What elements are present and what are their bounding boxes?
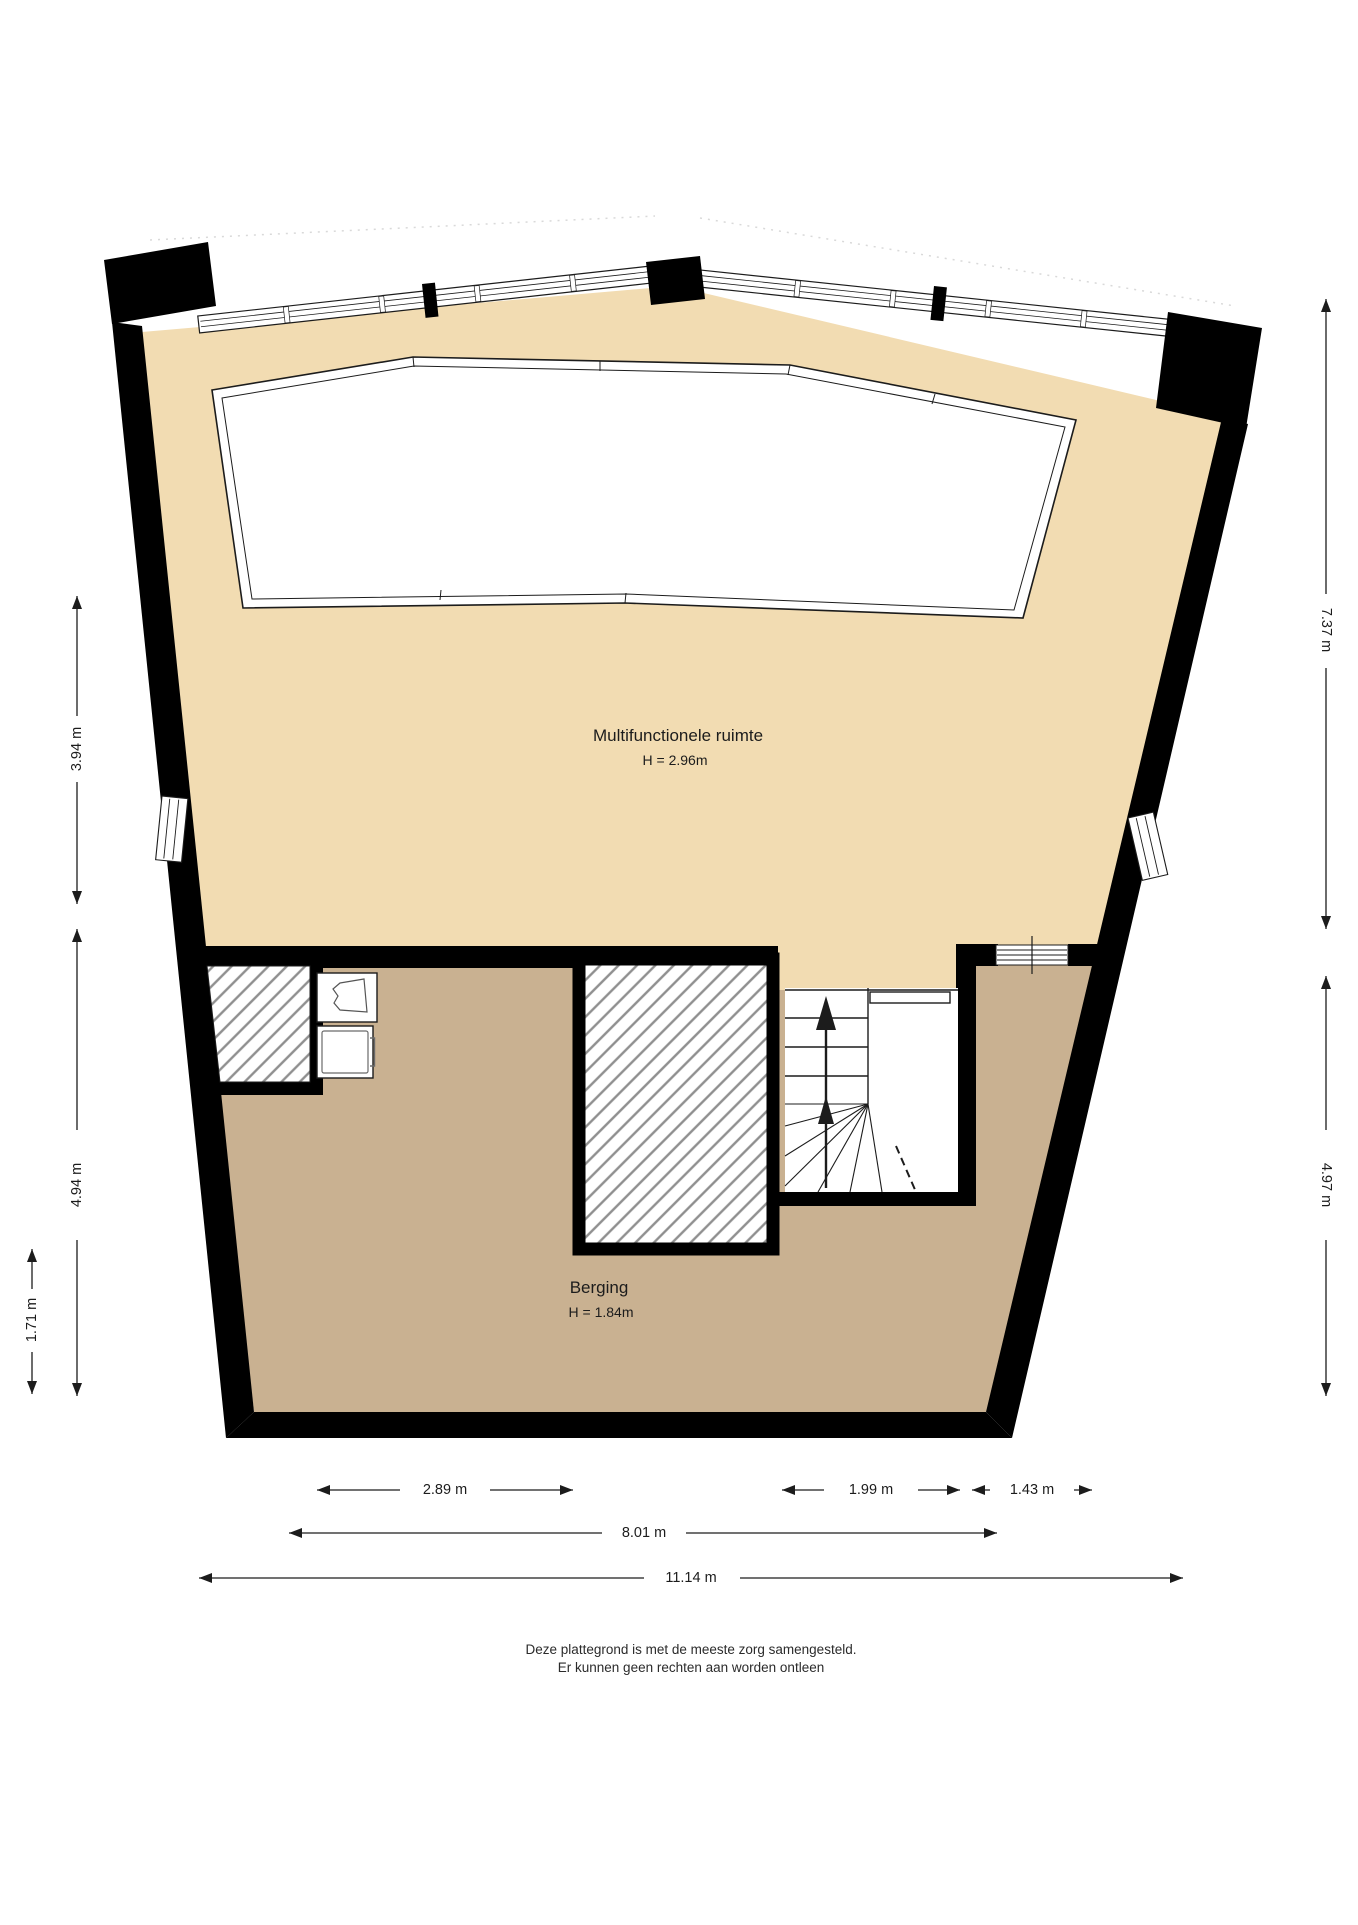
- partition-wall-right-b: [1068, 944, 1104, 966]
- floorplan-canvas: Multifunctionele ruimte H = 2.96m Bergin…: [0, 0, 1358, 1920]
- left-wall-window: [156, 796, 188, 862]
- closet-bottom-wall: [212, 1082, 323, 1095]
- room-height-berging: H = 1.84m: [569, 1304, 634, 1320]
- floorplan-page: Multifunctionele ruimte H = 2.96m Bergin…: [0, 0, 1358, 1920]
- dim-right-1-label: 7.37 m: [1318, 608, 1334, 652]
- staircase: [785, 988, 958, 1192]
- dim-bottom-1114-label: 11.14 m: [665, 1570, 716, 1586]
- room-label-multifunctioneel: Multifunctionele ruimte: [593, 726, 763, 745]
- ridge-block-apex: [646, 256, 705, 305]
- hatched-void-zone: [579, 959, 773, 1249]
- disclaimer-line-2: Er kunnen geen rechten aan worden ontlee…: [558, 1660, 824, 1675]
- dim-left-3-label: 1.71 m: [24, 1298, 40, 1342]
- window-frame: [156, 796, 188, 862]
- hatched-closet-zone: [207, 966, 310, 1082]
- dim-bottom-199-label: 1.99 m: [849, 1482, 893, 1498]
- room-label-berging: Berging: [570, 1278, 629, 1297]
- dim-left-2-label: 4.94 m: [69, 1163, 85, 1207]
- sink-icon: [333, 979, 367, 1012]
- dim-bottom-143-label: 1.43 m: [1010, 1482, 1054, 1498]
- disclaimer-line-1: Deze plattegrond is met de meeste zorg s…: [526, 1642, 857, 1657]
- room-height-multifunctioneel: H = 2.96m: [643, 752, 708, 768]
- stairwell-bottom-wall: [772, 1192, 976, 1206]
- corner-block-top-left: [104, 242, 216, 324]
- dim-bottom-801-label: 8.01 m: [622, 1525, 666, 1541]
- mullion-post-right: [930, 286, 946, 321]
- washer-icon: [322, 1031, 368, 1073]
- dim-bottom-289-label: 2.89 m: [423, 1482, 467, 1498]
- door-leaf-top-of-stairs: [870, 992, 950, 1003]
- void-outline-outer: [212, 357, 1076, 618]
- roof-void: [212, 357, 1076, 618]
- footer-disclaimer: Deze plattegrond is met de meeste zorg s…: [526, 1642, 857, 1675]
- floor-patch-above-stairs: [778, 944, 960, 990]
- overhang-line-left: [150, 216, 655, 240]
- bottom-wall: [226, 1412, 1012, 1438]
- corner-block-top-right: [1156, 312, 1262, 428]
- dim-right-2-label: 4.97 m: [1318, 1163, 1334, 1207]
- fixtures: [317, 973, 377, 1078]
- dim-left-1-label: 3.94 m: [69, 727, 85, 771]
- stairwell-side-wall: [956, 944, 976, 1194]
